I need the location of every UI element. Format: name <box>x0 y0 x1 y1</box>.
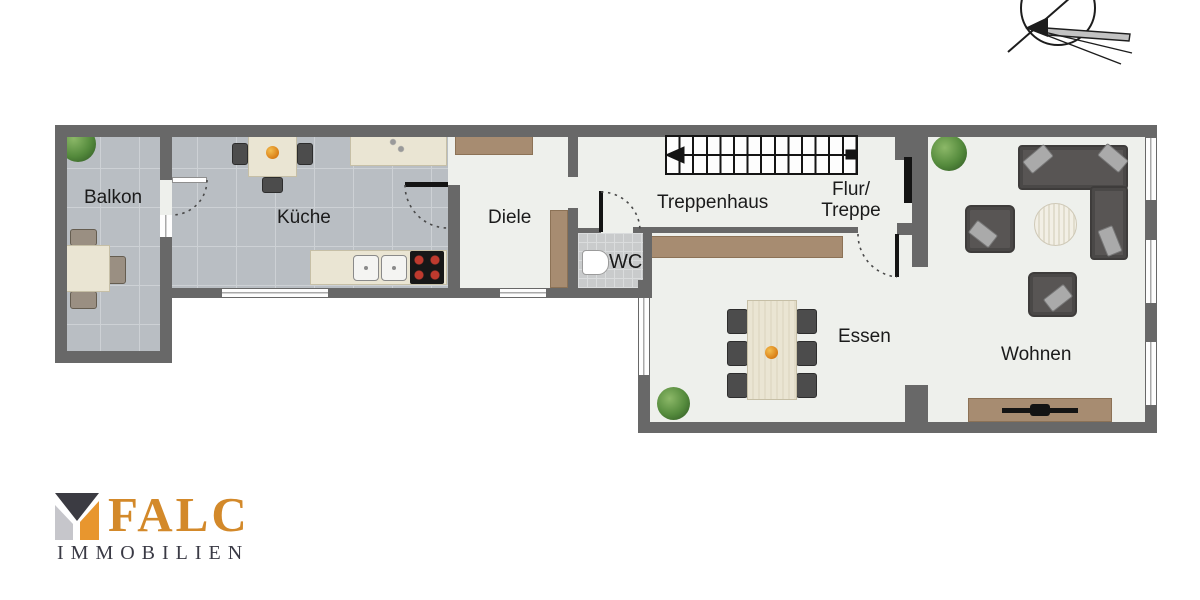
room-label-treppenhaus: Treppenhaus <box>657 192 768 213</box>
living-window <box>1146 240 1156 303</box>
room-label-diele: Diele <box>488 207 531 228</box>
wall-flur-stub <box>895 132 912 160</box>
floor-plan: Balkon Küche Diele WC Treppenhaus Flur/ … <box>0 0 1200 600</box>
kitchen-window <box>222 289 328 297</box>
room-label-flur-treppe: Flur/ Treppe <box>815 179 887 221</box>
sideboard <box>650 236 843 258</box>
sink-icon <box>353 255 379 281</box>
agency-logo: FALC IMMOBILIEN <box>55 490 315 570</box>
dining-chair <box>796 341 817 366</box>
room-label-wohnen: Wohnen <box>1001 344 1071 365</box>
logo-subtitle-text: IMMOBILIEN <box>57 543 249 563</box>
wall-balcony-bottom <box>55 351 172 363</box>
room-label-balkon: Balkon <box>84 187 142 208</box>
fruit-bowl-icon <box>266 146 279 159</box>
plant-icon <box>931 135 967 171</box>
kitchen-chair <box>297 143 313 165</box>
room-label-flur-line2: Treppe <box>815 200 887 221</box>
balcony-chair <box>70 291 97 309</box>
dining-chair <box>727 373 748 398</box>
compass-icon <box>1008 0 1132 64</box>
kitchen-chair <box>232 143 248 165</box>
falc-logo-mark-icon <box>55 493 99 540</box>
fruit-bowl-icon <box>765 346 778 359</box>
dining-window <box>639 298 649 375</box>
logo-brand-text: FALC <box>108 490 250 539</box>
wc-door-leaf <box>599 191 603 232</box>
wall-wc-north <box>578 228 601 233</box>
round-rug <box>1034 203 1077 246</box>
dining-chair <box>796 309 817 334</box>
room-label-kueche: Küche <box>277 207 331 228</box>
wall-diele-stairwell <box>568 130 578 177</box>
living-window <box>1146 138 1156 200</box>
balcony-door-leaf <box>172 177 207 183</box>
kitchen-door-leaf <box>405 182 448 187</box>
balcony-door-sidelight <box>160 215 172 237</box>
wall-outer-top <box>55 125 1157 137</box>
wall-balcony-right <box>160 137 172 180</box>
stairs <box>665 135 858 175</box>
living-window <box>1146 342 1156 405</box>
sink-icon <box>381 255 407 281</box>
wall-stairwell-dining <box>633 227 858 233</box>
toilet-icon <box>582 250 609 275</box>
counter-sink-taps-icon <box>388 137 408 155</box>
dining-chair <box>727 341 748 366</box>
tv-icon <box>1030 404 1050 416</box>
wall-outer-bottom <box>638 422 1157 433</box>
wall-balcony-left <box>55 125 67 363</box>
room-label-wc: WC <box>609 252 642 273</box>
stove-icon <box>410 251 444 284</box>
apartment-entry-door <box>904 157 912 203</box>
kitchen-chair <box>262 177 283 193</box>
dining-door-leaf <box>895 234 899 277</box>
dining-chair <box>727 309 748 334</box>
room-label-flur-line1: Flur/ <box>815 179 887 200</box>
plant-icon <box>657 387 690 420</box>
wardrobe <box>550 210 568 288</box>
wall-wc-west <box>568 208 578 298</box>
wall-kitchen-diele <box>448 185 460 298</box>
wall-living-west <box>912 132 928 267</box>
diele-window <box>500 289 546 297</box>
balcony-chair <box>70 229 97 246</box>
room-label-essen: Essen <box>838 326 891 347</box>
wall-dining-living-stub <box>905 385 928 422</box>
dining-chair <box>796 373 817 398</box>
